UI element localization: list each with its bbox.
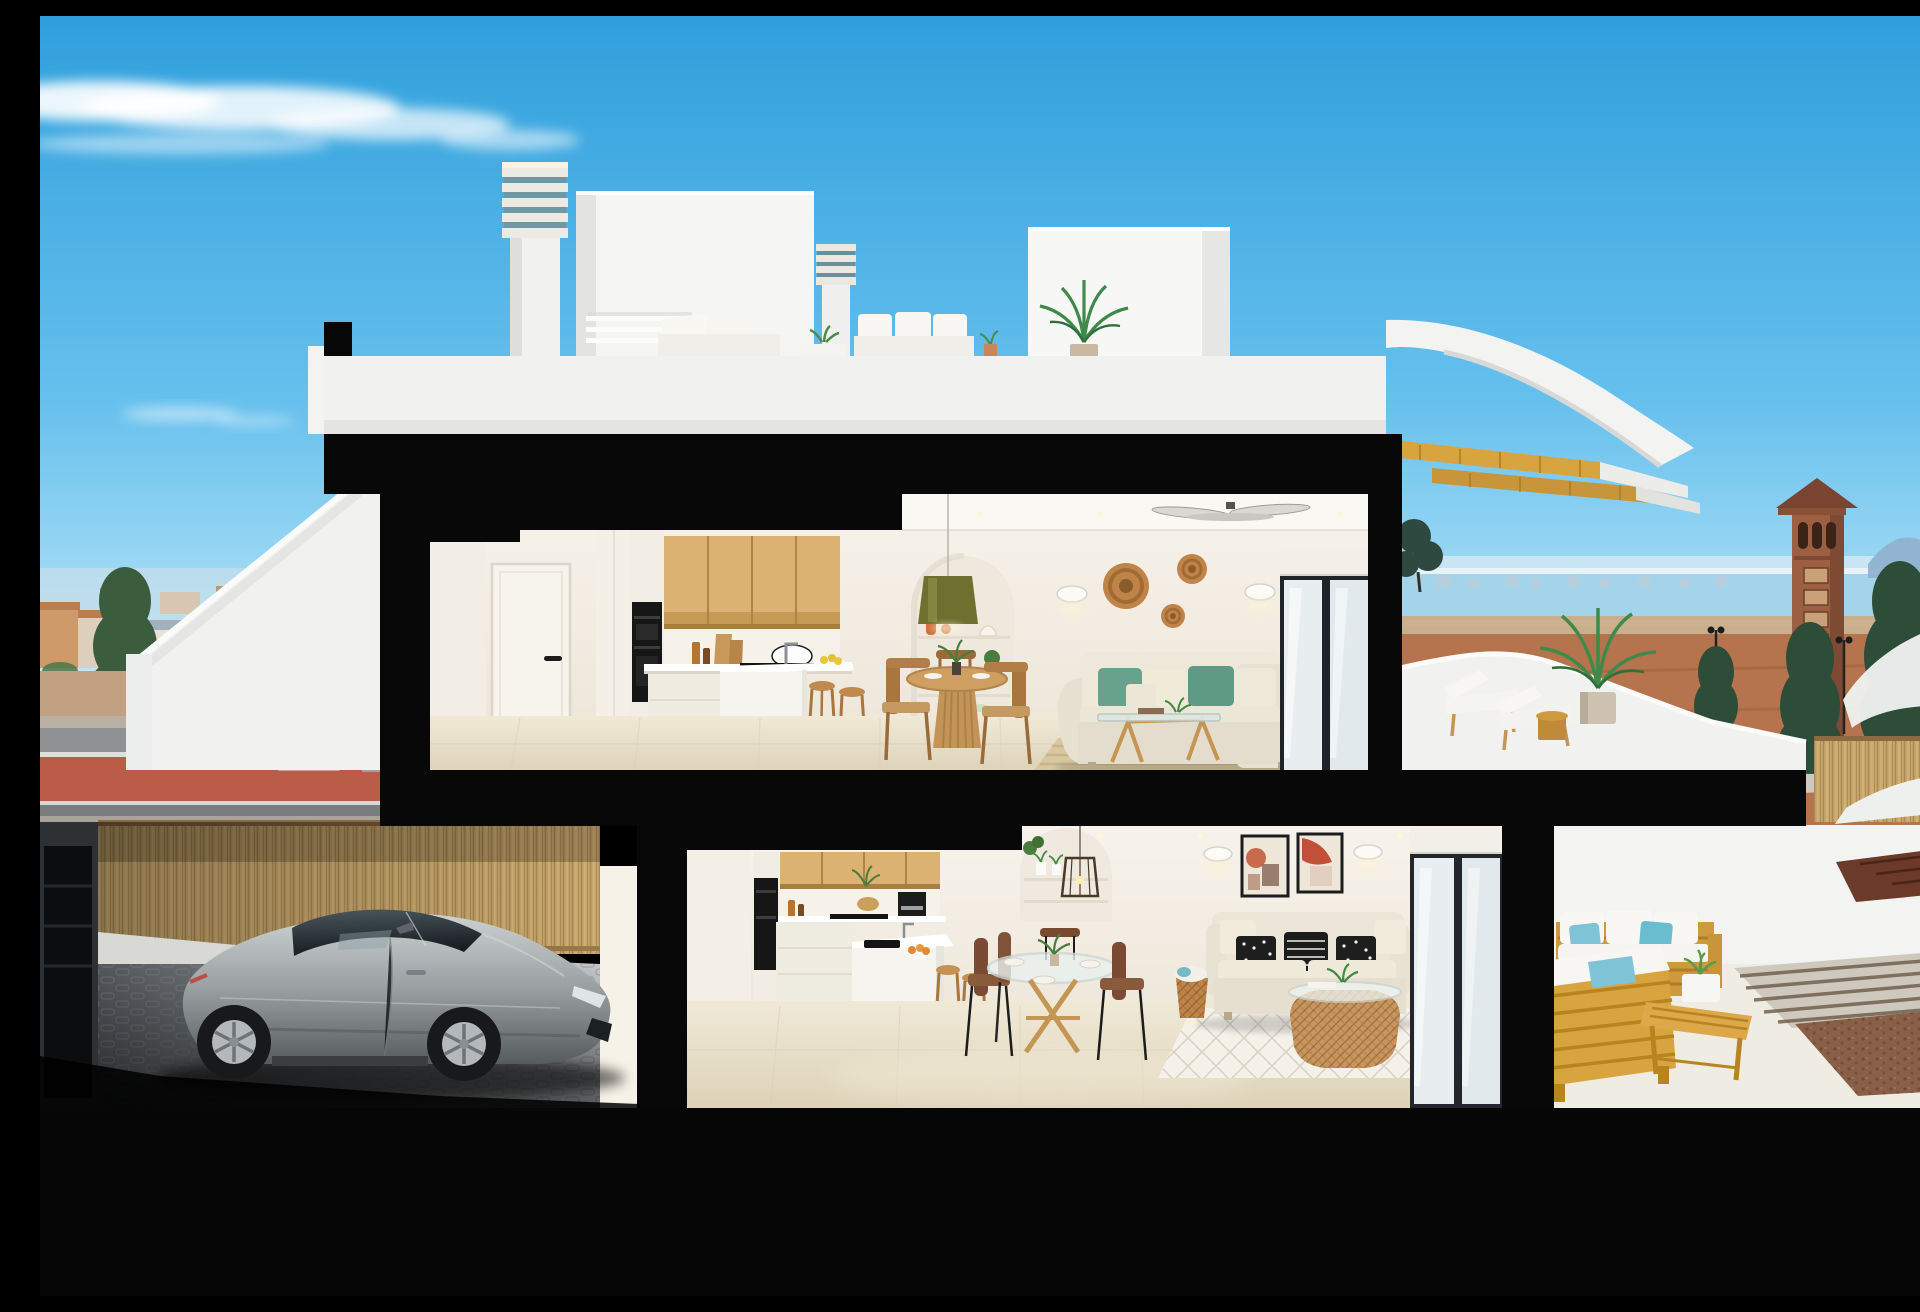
sliding-doors-lower [1410,828,1504,1106]
chimney-left [502,162,568,362]
table-vase [952,662,961,675]
garage [40,820,640,1112]
ground-black [40,1108,1920,1296]
car-sill [272,1056,428,1066]
roof-sofa-center [854,312,974,362]
road-near [40,805,385,817]
lower-terrace [1550,825,1920,1109]
sliding-door-upper [1280,550,1372,774]
sconce-lower-left [1198,847,1238,879]
cut-mid-slab [380,770,1806,826]
arch-niche-lower [1020,828,1112,921]
cooktop-lower [830,914,888,919]
road-curb-line2 [40,801,385,805]
stair-post [126,654,152,770]
white-planter [1682,974,1720,1002]
backsplash [664,629,840,667]
car-rear-wheel [197,1005,271,1079]
lower-floor [685,825,1504,1109]
terrace-side-table [1536,711,1568,740]
architectural-render: Cutaway cross-section 3D render of a whi… [40,16,1920,1296]
island-sink [864,940,900,948]
cut-right-column-lower [1502,824,1554,1110]
sconce-lower-right [1348,845,1388,877]
roof-parapet-shade [324,420,1386,434]
car-door-handle [406,970,426,975]
render-canvas [40,16,1920,1296]
cut-roof-slab [324,434,1386,494]
blind-box-lower [1410,828,1504,856]
base-cabinets-lower [776,922,854,1004]
cut-left-column-upper [380,492,430,774]
wall-cabinets-lower [780,852,940,888]
roof-parapet-return [308,346,326,434]
roof-volume [1028,227,1230,362]
blanket-basket [1175,966,1208,1018]
blind-box [1280,550,1372,578]
cut-right-column-upper [1368,434,1402,774]
framed-art-2 [1298,834,1342,892]
teal-cushion-2 [1188,666,1234,706]
wall-cabinets-upper [664,536,840,629]
framed-art-1 [1242,836,1288,896]
cut-garage-divider [637,824,687,1110]
upper-floor [426,492,1372,777]
car-front-wheel [427,1007,501,1081]
cut-roof-slab-step [380,492,902,530]
coffee-machine [898,892,926,919]
door-handle [544,656,562,661]
cut-lower-ceiling-step [685,824,1022,850]
